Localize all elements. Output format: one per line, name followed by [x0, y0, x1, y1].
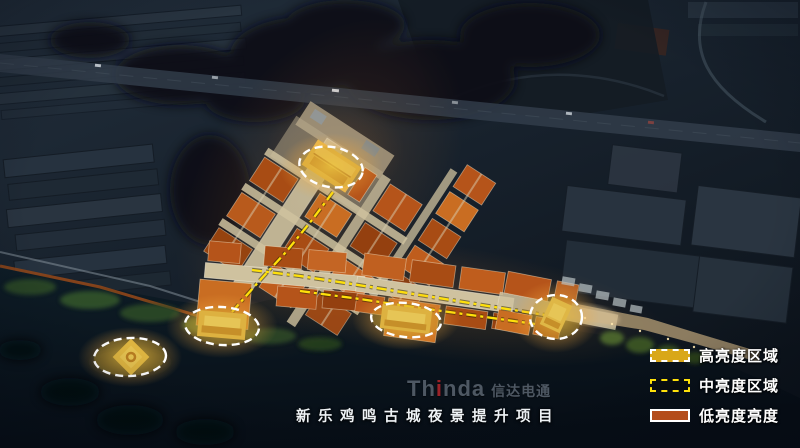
project-caption: 新乐鸡鸣古城夜景提升项目	[296, 405, 560, 426]
legend-swatch-low-brightness	[650, 409, 690, 422]
watermark: Thinda 信达电通	[407, 376, 551, 402]
legend-swatch-high-brightness	[650, 349, 690, 362]
watermark-latin: Thinda	[407, 376, 485, 402]
watermark-latin-accent: i	[436, 376, 443, 401]
watermark-latin-suffix: nda	[443, 376, 485, 401]
legend-row-low: 低亮度亮度	[650, 404, 779, 426]
legend: 高亮度区域 中亮度区域 低亮度亮度	[650, 344, 779, 434]
nightscape-masterplan-image: Thinda 信达电通 新乐鸡鸣古城夜景提升项目 高亮度区域 中亮度区域 低亮度…	[0, 0, 800, 448]
watermark-cjk: 信达电通	[491, 381, 551, 401]
watermark-latin-prefix: Th	[407, 376, 436, 401]
legend-row-mid: 中亮度区域	[650, 374, 779, 396]
legend-label-high: 高亮度区域	[699, 345, 779, 366]
legend-label-mid: 中亮度区域	[699, 375, 779, 396]
legend-label-low: 低亮度亮度	[699, 405, 779, 426]
legend-row-high: 高亮度区域	[650, 344, 779, 366]
legend-swatch-mid-brightness	[650, 379, 690, 392]
